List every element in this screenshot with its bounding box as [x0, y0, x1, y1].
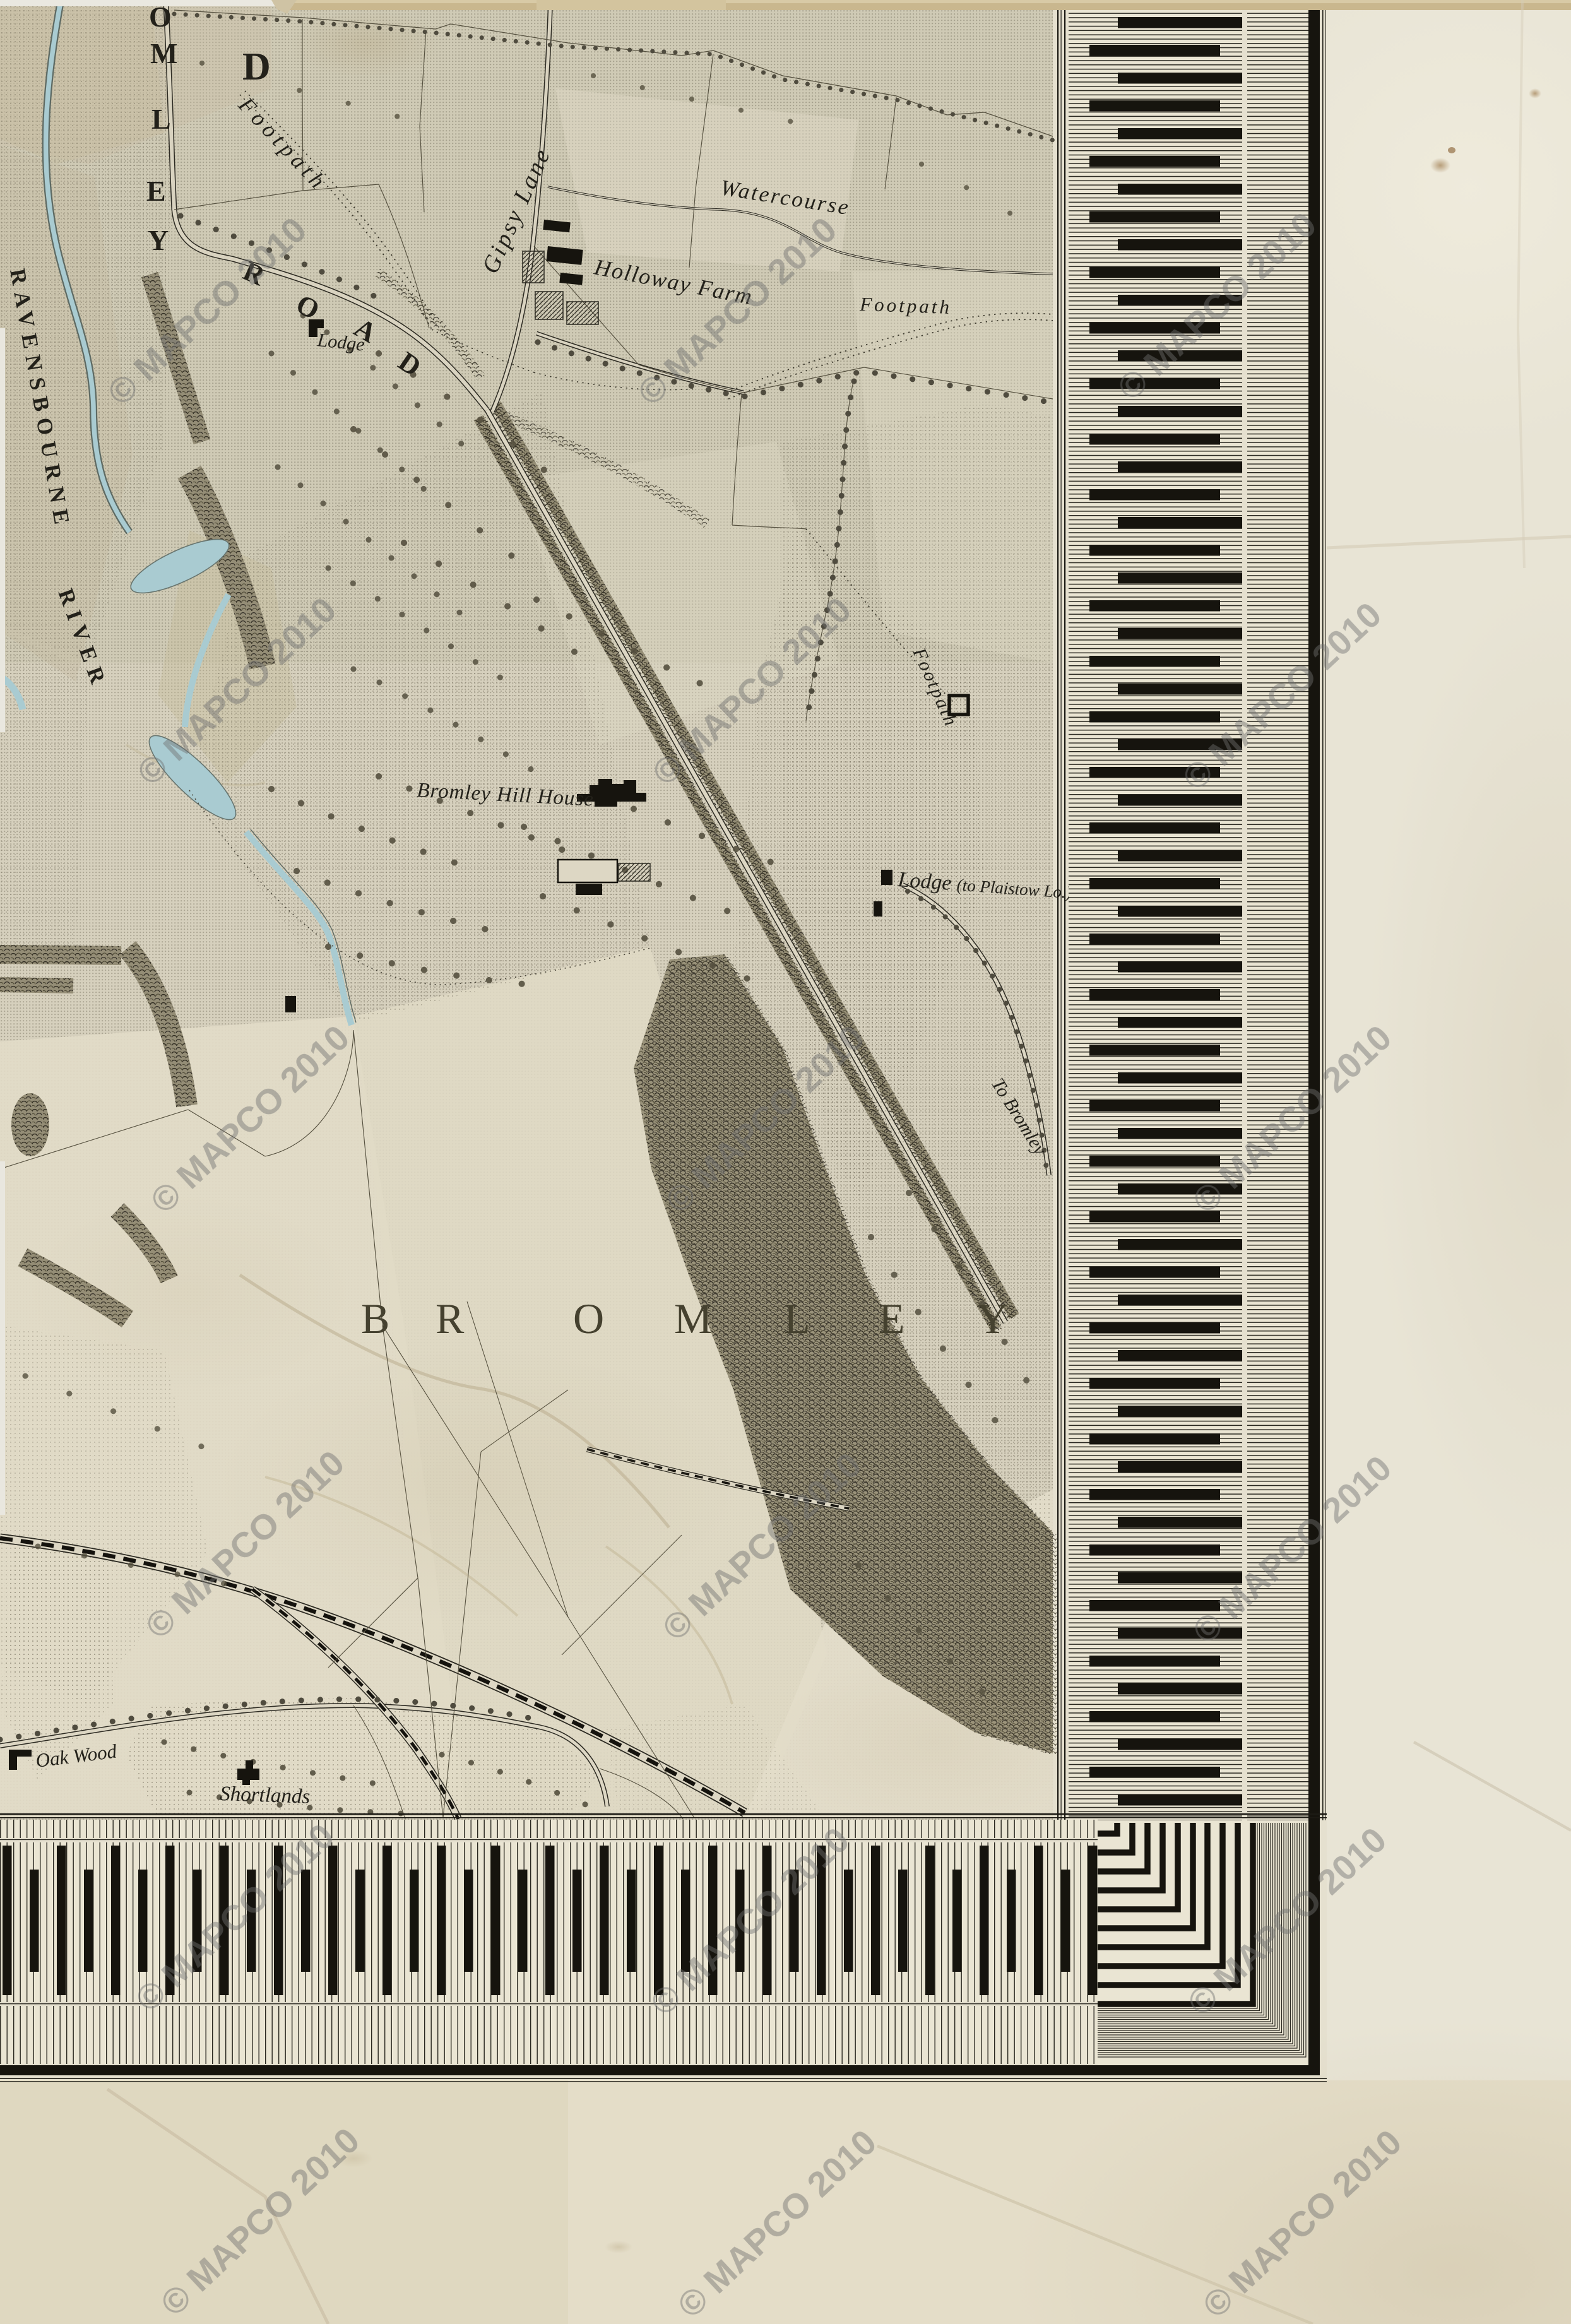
svg-text:E: E	[879, 1295, 905, 1343]
svg-text:D: D	[242, 45, 271, 88]
svg-text:Footpath: Footpath	[859, 293, 952, 318]
svg-text:E: E	[146, 175, 166, 207]
svg-text:L: L	[151, 103, 171, 135]
svg-text:R: R	[436, 1295, 465, 1343]
svg-text:Y: Y	[977, 1295, 1008, 1343]
svg-text:Y: Y	[148, 224, 169, 256]
svg-text:M: M	[674, 1295, 712, 1343]
svg-text:L: L	[784, 1295, 810, 1343]
svg-text:M: M	[150, 37, 177, 69]
svg-text:B: B	[361, 1295, 389, 1343]
svg-text:O: O	[573, 1295, 604, 1343]
svg-text:Shortlands: Shortlands	[220, 1782, 311, 1808]
